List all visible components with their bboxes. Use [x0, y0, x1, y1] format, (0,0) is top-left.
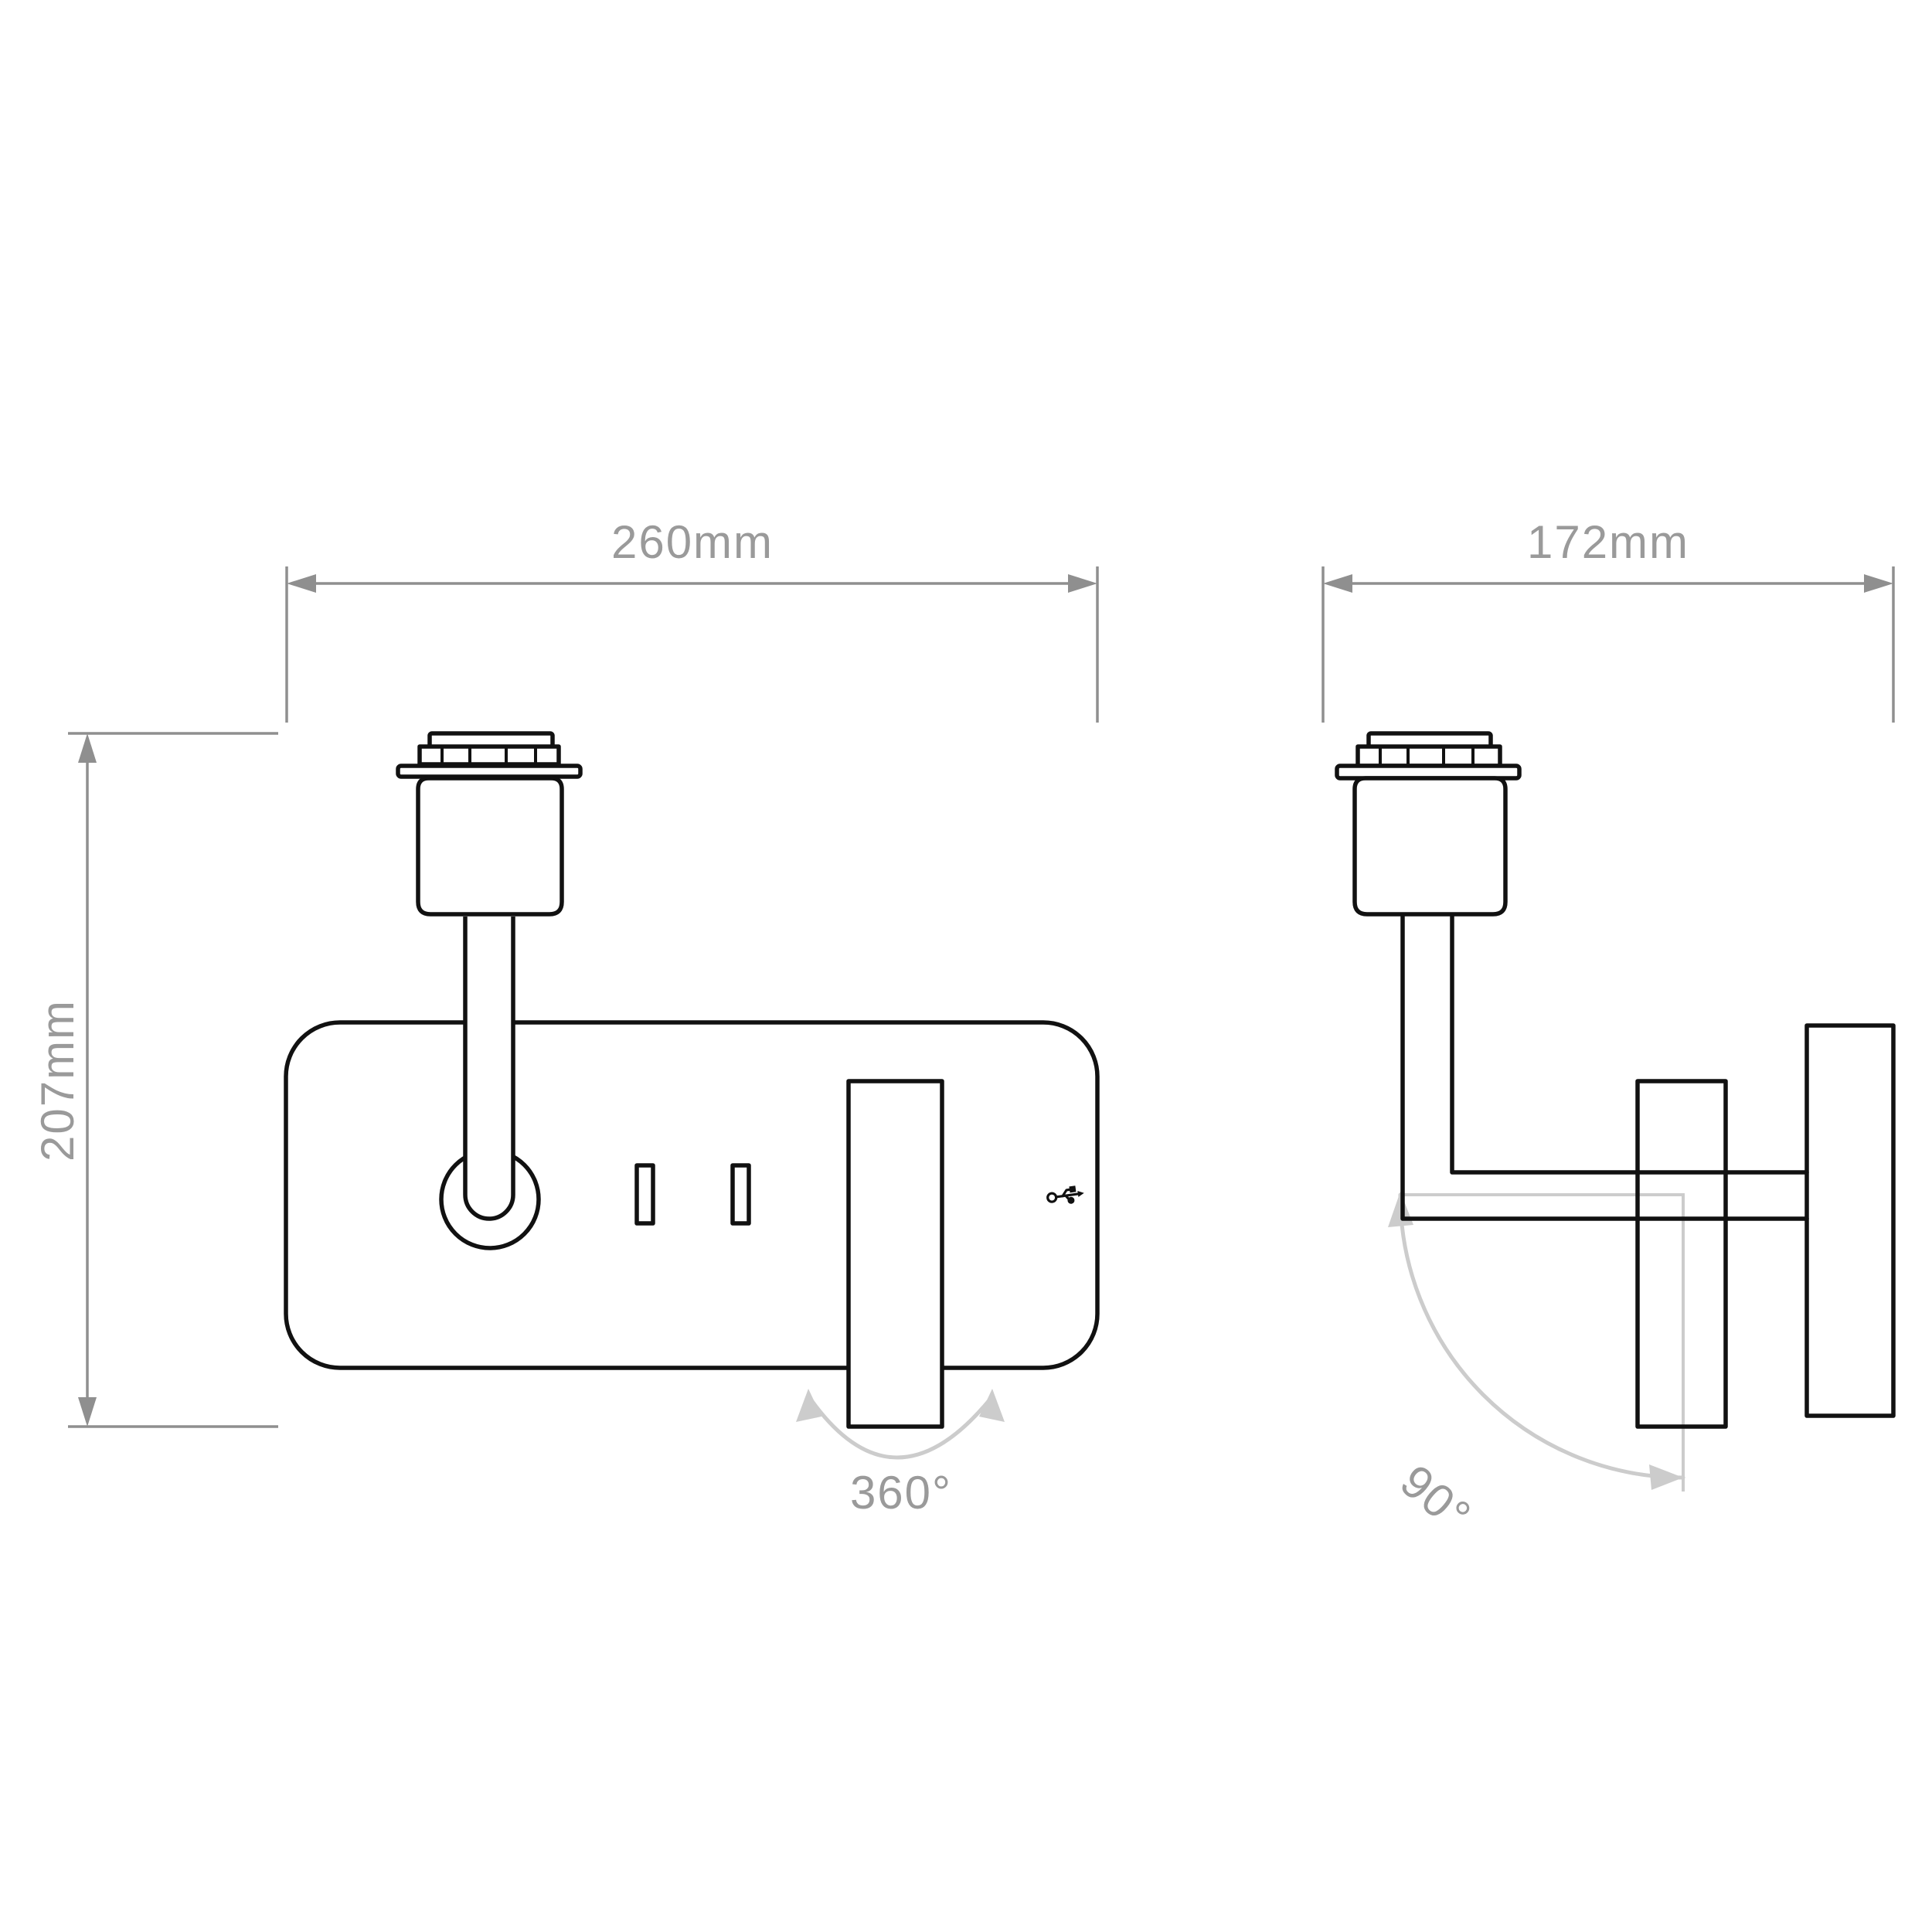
- arrow-up-icon: [78, 733, 97, 763]
- front-width-dimension: 260mm: [287, 516, 1097, 723]
- lamp-holder-assembly-side: [1337, 733, 1519, 914]
- switch-slot-right[interactable]: [733, 1165, 749, 1223]
- shade-ring-flange: [398, 766, 580, 777]
- backplate-body: [286, 1022, 1097, 1368]
- front-rotation-label: 360°: [850, 1467, 952, 1519]
- front-width-label: 260mm: [611, 516, 774, 568]
- arc-arrow-left-icon: [796, 1389, 821, 1422]
- lamp-stem: [465, 917, 513, 1219]
- arrow-left-icon: [1323, 574, 1352, 593]
- arrow-right-icon: [1864, 574, 1893, 593]
- side-view: 172mm 90°: [1323, 516, 1893, 1543]
- lamp-holder-assembly: [398, 733, 580, 914]
- switch-slot-left[interactable]: [637, 1165, 653, 1223]
- side-depth-dimension: 172mm: [1323, 516, 1893, 723]
- front-height-dimension: 207mm: [32, 733, 278, 1427]
- arrow-right-icon: [1068, 574, 1097, 593]
- side-depth-label: 172mm: [1527, 516, 1689, 568]
- wall-plate-fill: [1807, 1026, 1893, 1416]
- front-view: 260mm 207mm: [32, 516, 1097, 1519]
- lamp-holder-cylinder: [418, 778, 562, 914]
- arrow-left-icon: [287, 574, 316, 593]
- front-height-label: 207mm: [32, 999, 83, 1162]
- side-tilt-label: 90°: [1391, 1455, 1481, 1543]
- stem-and-arm-upper-edge: [1452, 917, 1807, 1172]
- lamp-holder-cylinder: [1355, 778, 1505, 914]
- reading-light-head: [849, 1081, 942, 1427]
- wall-light-dimension-diagram: 260mm 207mm: [0, 0, 1932, 1932]
- arc-arrow-right-icon: [1649, 1464, 1683, 1490]
- technical-drawing-page: 260mm 207mm: [0, 0, 1932, 1932]
- arrow-down-icon: [78, 1397, 97, 1427]
